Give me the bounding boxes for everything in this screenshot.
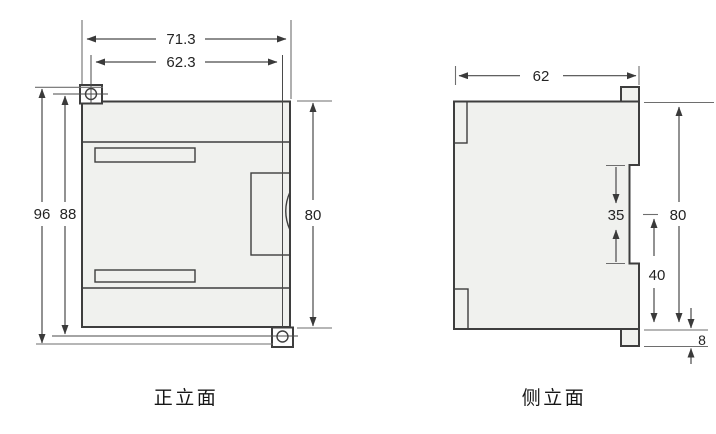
dim-label-front-body-height: 80: [305, 207, 322, 224]
side-view: 62 35 80 40 8 侧立面: [454, 66, 714, 409]
front-view: 71.3 62.3 96 88: [34, 20, 332, 409]
dim-label-din-rail: 35: [608, 207, 625, 224]
dim-label-screw-height: 88: [60, 206, 77, 223]
dim-label-tab-protrusion: 8: [698, 332, 706, 348]
front-view-caption: 正立面: [154, 387, 219, 409]
front-body: [82, 102, 290, 328]
dim-label-screw-width: 62.3: [166, 54, 195, 71]
side-bottom-tab: [621, 329, 639, 346]
dim-label-lower-section: 40: [649, 267, 666, 284]
side-top-tab: [621, 87, 639, 102]
dim-label-depth: 62: [533, 68, 550, 85]
dim-label-overall-height: 96: [34, 206, 51, 223]
drawing-svg: 71.3 62.3 96 88: [0, 0, 716, 434]
dim-label-overall-width: 71.3: [166, 31, 195, 48]
side-view-caption: 侧立面: [522, 387, 587, 409]
dimension-drawing: 71.3 62.3 96 88: [0, 0, 716, 434]
dim-label-side-height: 80: [670, 207, 687, 224]
